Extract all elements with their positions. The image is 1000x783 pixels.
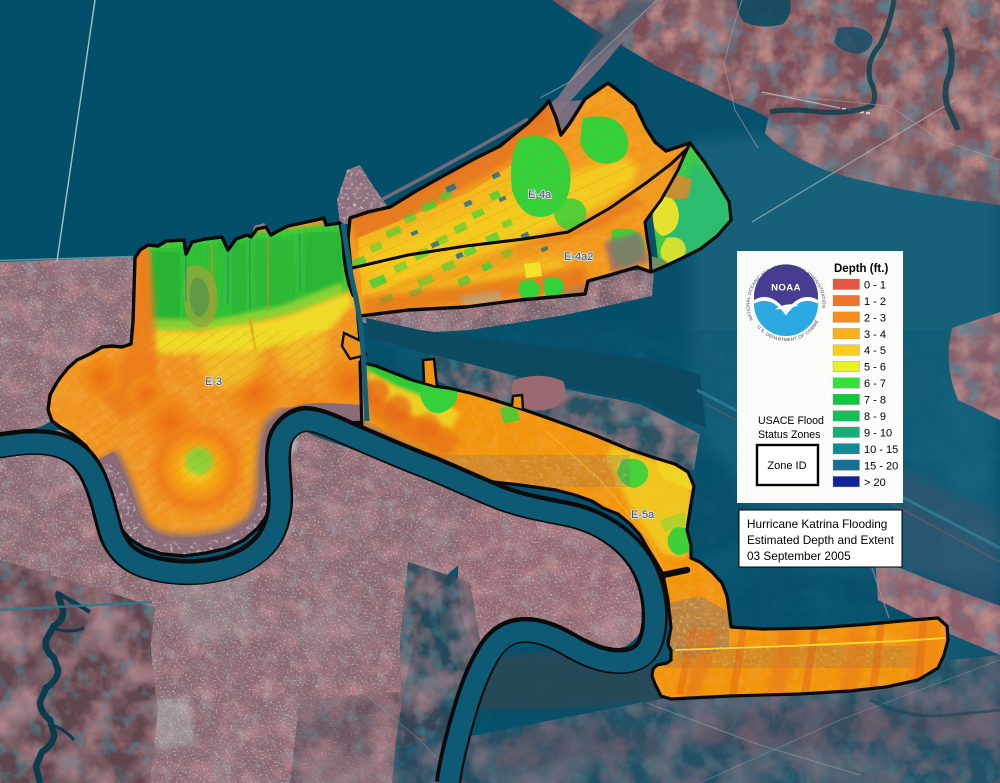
svg-text:6 - 7: 6 - 7 bbox=[864, 378, 886, 390]
svg-text:10 - 15: 10 - 15 bbox=[864, 444, 898, 456]
svg-text:Hurricane Katrina Flooding: Hurricane Katrina Flooding bbox=[747, 517, 887, 531]
svg-text:E-3: E-3 bbox=[205, 376, 222, 388]
svg-text:15 - 20: 15 - 20 bbox=[864, 460, 898, 472]
svg-text:03 September 2005: 03 September 2005 bbox=[747, 549, 851, 563]
svg-text:0 - 1: 0 - 1 bbox=[864, 279, 886, 291]
svg-text:E-4a: E-4a bbox=[528, 189, 552, 201]
svg-text:7 - 8: 7 - 8 bbox=[864, 395, 886, 407]
svg-text:USACE Flood: USACE Flood bbox=[758, 415, 824, 427]
svg-text:Depth (ft.): Depth (ft.) bbox=[834, 263, 888, 275]
svg-text:4 - 5: 4 - 5 bbox=[864, 345, 886, 357]
svg-text:5 - 6: 5 - 6 bbox=[864, 362, 886, 374]
svg-text:E-5a: E-5a bbox=[631, 509, 655, 521]
svg-text:9 - 10: 9 - 10 bbox=[864, 427, 892, 439]
svg-text:Estimated Depth and Extent: Estimated Depth and Extent bbox=[747, 533, 895, 547]
svg-text:Status Zones: Status Zones bbox=[758, 429, 820, 441]
svg-text:8 - 9: 8 - 9 bbox=[864, 411, 886, 423]
svg-text:> 20: > 20 bbox=[864, 477, 886, 489]
svg-text:2 - 3: 2 - 3 bbox=[864, 312, 886, 324]
svg-text:E-4a2: E-4a2 bbox=[564, 251, 593, 263]
svg-text:Zone ID: Zone ID bbox=[767, 460, 806, 472]
svg-text:NOAA: NOAA bbox=[771, 283, 801, 294]
svg-text:3 - 4: 3 - 4 bbox=[864, 329, 886, 341]
svg-text:1 - 2: 1 - 2 bbox=[864, 296, 886, 308]
